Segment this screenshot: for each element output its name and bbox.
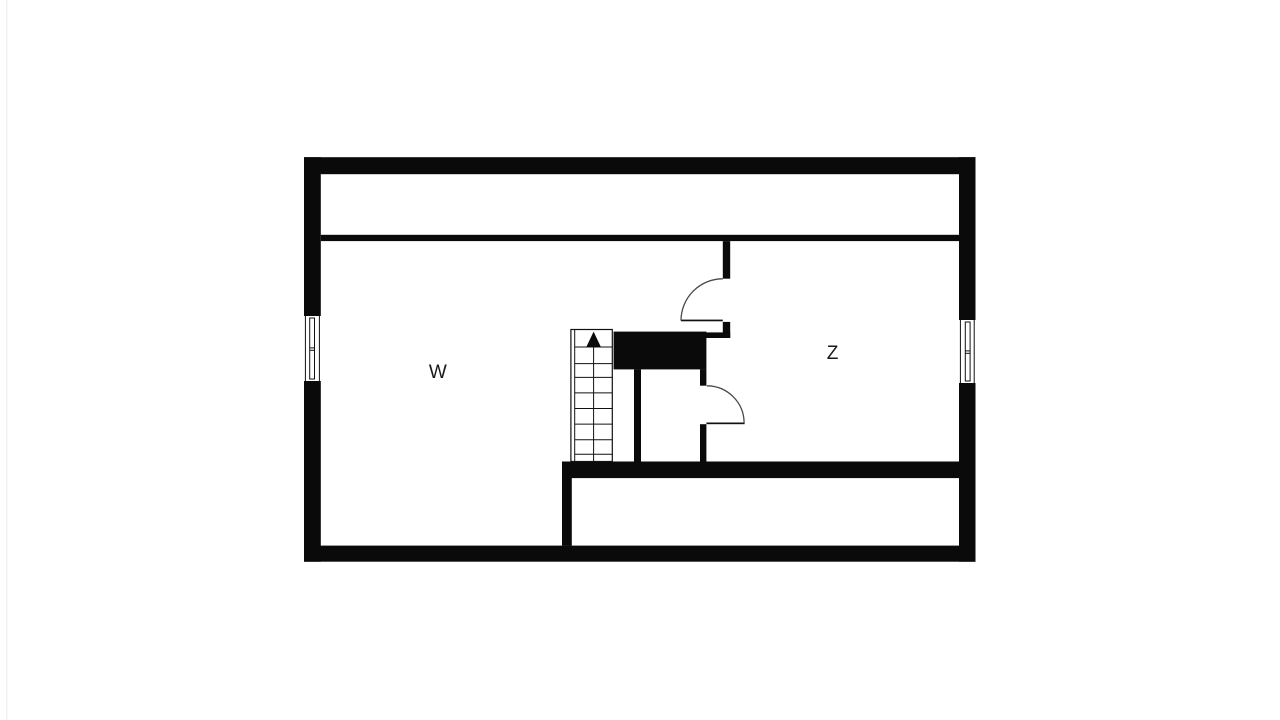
- svg-text:Z: Z: [827, 343, 839, 364]
- svg-text:W: W: [429, 362, 447, 383]
